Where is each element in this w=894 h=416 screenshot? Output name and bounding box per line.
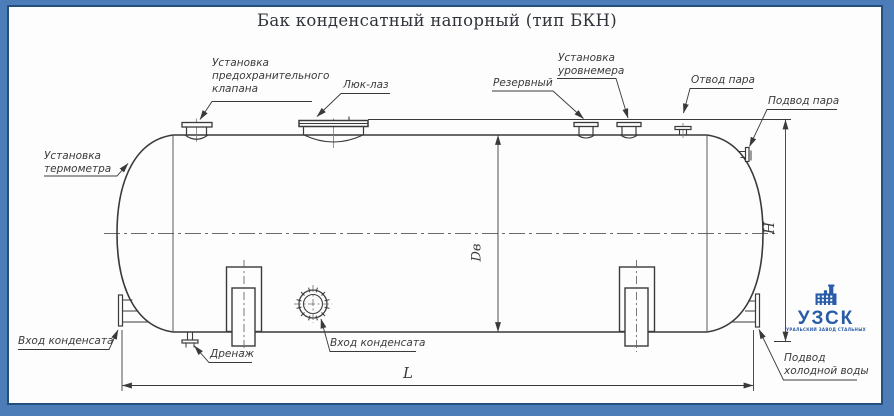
- dimension-label-diameter: Dв: [470, 244, 485, 262]
- condensate-front-flange: [294, 285, 332, 323]
- drain-nozzle: [182, 332, 198, 348]
- saddle-support-right: [620, 267, 655, 346]
- callout-steam-inlet: Подвод пара: [768, 95, 839, 108]
- logo-name: УЗСК: [786, 310, 866, 327]
- factory-icon: [812, 284, 840, 306]
- logo-tagline: УРАЛЬСКИЙ ЗАВОД СТАЛЬНЫХ КОНСТРУКЦИЙ: [786, 327, 866, 332]
- cold-water-nozzle: [732, 294, 760, 327]
- manhole-nozzle: [299, 117, 368, 149]
- dimension-label-height: H: [762, 222, 778, 234]
- manufacturer-logo: УЗСК УРАЛЬСКИЙ ЗАВОД СТАЛЬНЫХ КОНСТРУКЦИ…: [786, 284, 866, 332]
- callout-level-gauge: Установка уровнемера: [558, 52, 624, 78]
- dimension-label-length: L: [403, 364, 413, 382]
- callout-safety-valve: Установка предохранительного клапана: [212, 57, 329, 96]
- leader-level-gauge: [557, 79, 628, 119]
- callout-reserve: Резервный: [493, 77, 553, 90]
- leader-safety-valve: [200, 102, 312, 120]
- callout-steam-outlet: Отвод пара: [691, 74, 755, 87]
- leader-manhole: [317, 94, 390, 117]
- callout-leaders: [18, 79, 857, 381]
- leader-steam-inlet: [750, 110, 838, 147]
- condensate-left-nozzle: [119, 295, 149, 326]
- tank-drawing: [0, 0, 894, 416]
- callout-manhole: Люк-лаз: [343, 79, 389, 92]
- callout-drain: Дренаж: [210, 348, 254, 361]
- callout-condensate-left: Вход конденсата: [18, 335, 113, 348]
- safety-valve-nozzle: [182, 119, 212, 143]
- dimension-height: [368, 120, 791, 342]
- callout-thermometer: Установка термометра: [44, 150, 111, 176]
- callout-cold-water: Подвод холодной воды: [784, 352, 869, 378]
- drawing-title: Бак конденсатный напорный (тип БКН): [0, 11, 874, 30]
- leader-steam-outlet: [684, 89, 754, 114]
- callout-condensate-front: Вход конденсата: [330, 337, 425, 350]
- leader-reserve: [492, 91, 584, 119]
- drawing-sheet: Бак конденсатный напорный (тип БКН) Уста…: [0, 0, 894, 416]
